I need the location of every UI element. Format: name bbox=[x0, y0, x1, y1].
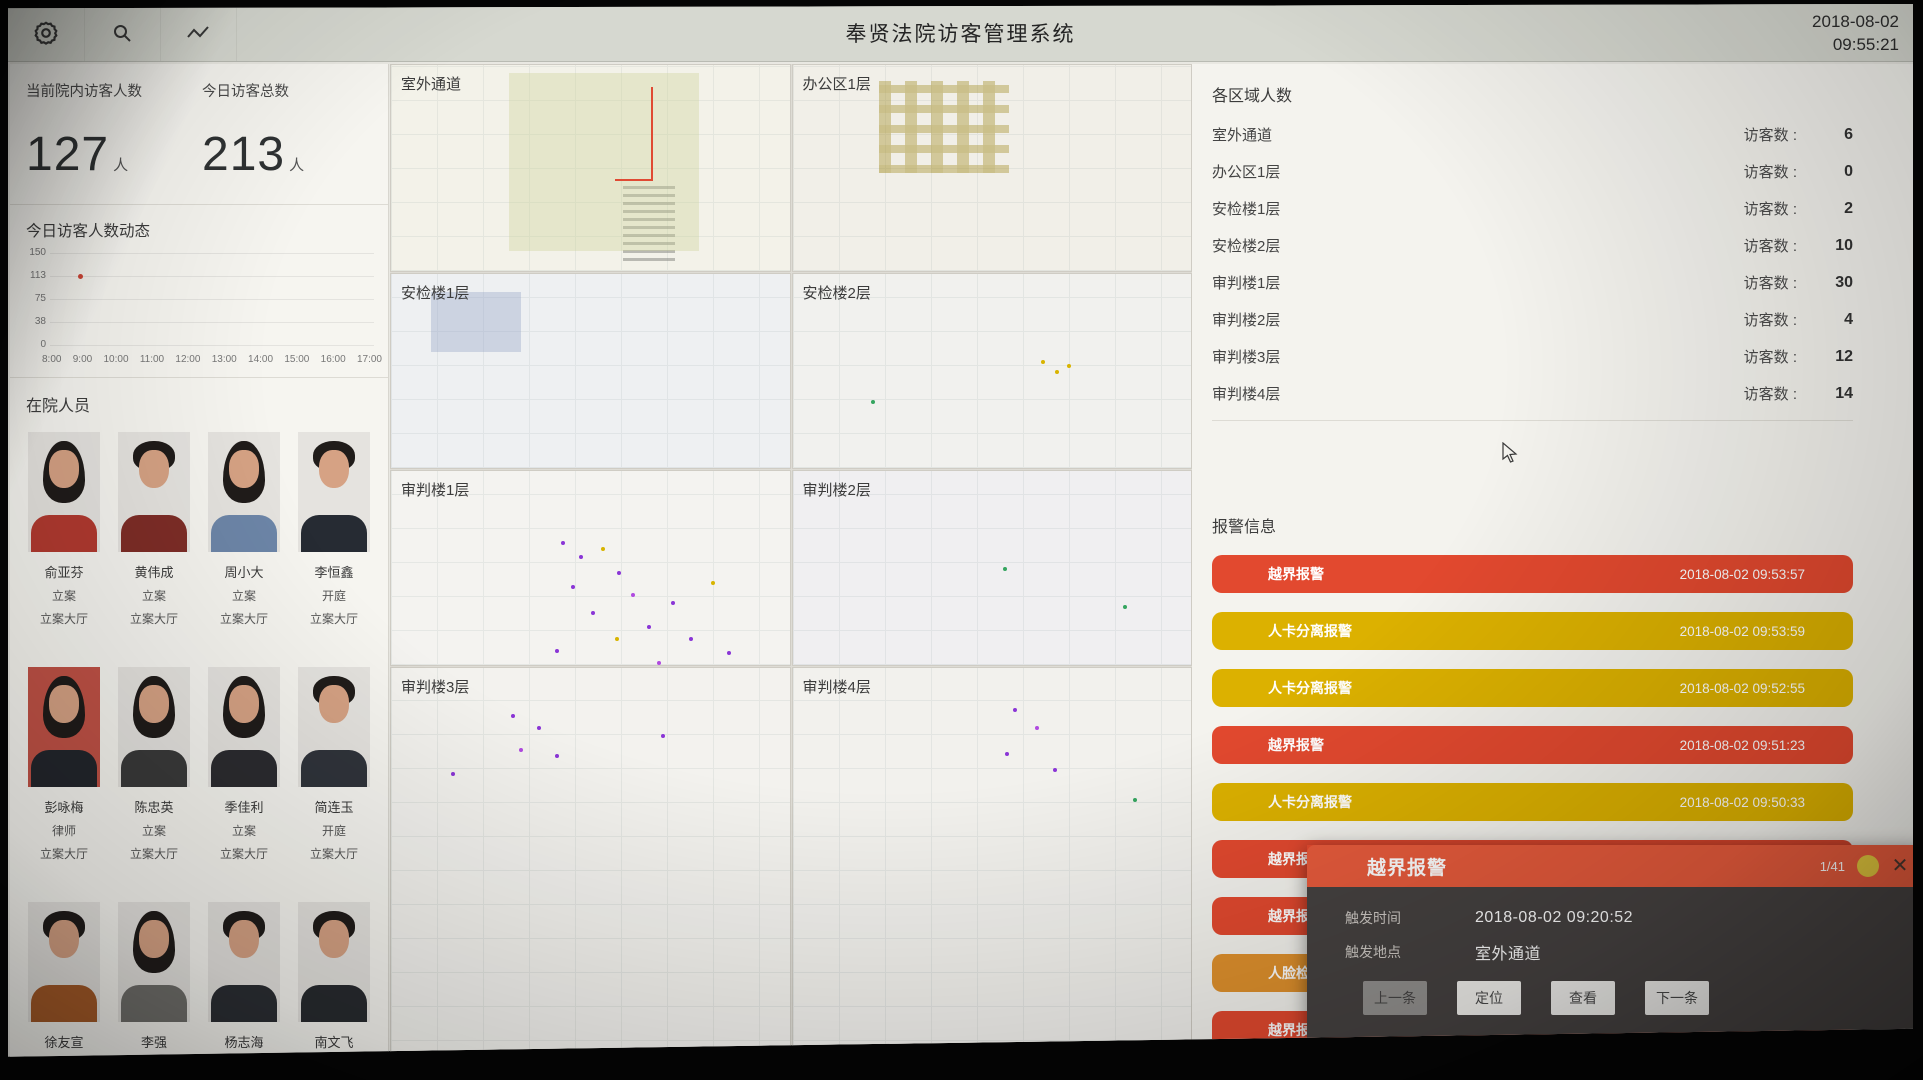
person-card: 周小大 立案 立案大厅 bbox=[202, 432, 286, 627]
person-photo bbox=[208, 902, 280, 1022]
person-location: 立案大厅 bbox=[22, 845, 106, 862]
alarm-item[interactable]: 人卡分离报警2018-08-02 09:52:55 bbox=[1212, 669, 1853, 707]
person-name: 杨志海 bbox=[202, 1032, 286, 1051]
area-count: 10 bbox=[1797, 237, 1853, 255]
close-icon[interactable]: ✕ bbox=[1889, 855, 1911, 877]
dashboard-screen: 奉贤法院访客管理系统 2018-08-02 09:55:21 当前院内访客人数 … bbox=[8, 4, 1913, 1076]
person-type: 立案 bbox=[202, 587, 286, 604]
person-type: 立案 bbox=[22, 587, 106, 604]
alarm-item[interactable]: 人卡分离报警2018-08-02 09:50:33 bbox=[1212, 783, 1853, 821]
top-bar: 奉贤法院访客管理系统 2018-08-02 09:55:21 bbox=[8, 4, 1913, 62]
person-type: 立案 bbox=[202, 822, 286, 839]
today-visitors-label: 今日访客总数 bbox=[202, 80, 378, 101]
person-name: 南文飞 bbox=[292, 1032, 376, 1051]
alarm-item[interactable]: 越界报警2018-08-02 09:53:57 bbox=[1212, 555, 1853, 593]
chart-title: 今日访客人数动态 bbox=[10, 205, 388, 249]
y-tick: 150 bbox=[20, 247, 46, 258]
person-name: 陈忠英 bbox=[112, 797, 196, 816]
visitor-dots bbox=[561, 541, 565, 545]
person-photo bbox=[28, 667, 100, 787]
person-location: 立案大厅 bbox=[292, 610, 376, 627]
alarm-status-dot bbox=[1857, 855, 1879, 877]
person-name: 李强 bbox=[112, 1032, 196, 1051]
area-count: 4 bbox=[1797, 311, 1853, 329]
map-label: 室外通道 bbox=[401, 73, 461, 94]
area-count: 14 bbox=[1797, 385, 1853, 403]
map-outdoor-passage[interactable]: 室外通道 bbox=[390, 64, 791, 272]
area-count: 30 bbox=[1797, 274, 1853, 292]
person-name: 简连玉 bbox=[292, 797, 376, 816]
person-type: 开庭 bbox=[202, 1057, 286, 1074]
area-row: 审判楼3层访客数 :12 bbox=[1212, 338, 1853, 375]
person-photo bbox=[298, 902, 370, 1022]
map-label: 安检楼1层 bbox=[401, 282, 469, 303]
y-tick: 0 bbox=[20, 339, 46, 350]
area-count: 6 bbox=[1797, 126, 1853, 144]
person-card: 俞亚芬 立案 立案大厅 bbox=[22, 432, 106, 627]
person-type: 立案 bbox=[22, 1057, 106, 1074]
visitor-dots bbox=[1003, 567, 1007, 571]
person-photo bbox=[298, 432, 370, 552]
person-location: 立案大厅 bbox=[202, 845, 286, 862]
locate-button[interactable]: 定位 bbox=[1457, 981, 1521, 1015]
map-label: 安检楼2层 bbox=[803, 282, 871, 303]
date-text: 2018-08-02 bbox=[1812, 11, 1899, 34]
person-photo bbox=[118, 902, 190, 1022]
map-trial-floor1[interactable]: 审判楼1层 bbox=[390, 470, 791, 666]
view-button[interactable]: 查看 bbox=[1551, 981, 1615, 1015]
trigger-time-label: 触发时间 bbox=[1345, 908, 1475, 928]
visitor-dots bbox=[511, 714, 515, 718]
divider bbox=[1212, 420, 1853, 421]
map-security-floor1[interactable]: 安检楼1层 bbox=[390, 273, 791, 469]
map-label: 审判楼1层 bbox=[401, 479, 469, 500]
map-office-floor1[interactable]: 办公区1层 bbox=[792, 64, 1193, 272]
person-card: 李强 立案 bbox=[112, 902, 196, 1080]
trigger-time-value: 2018-08-02 09:20:52 bbox=[1475, 909, 1633, 927]
map-trial-floor3[interactable]: 审判楼3层 bbox=[390, 667, 791, 1076]
visitor-trend-chart: 150 113 75 38 0 bbox=[20, 253, 378, 349]
area-counts-list: 室外通道访客数 :6 办公区1层访客数 :0 安检楼1层访客数 :2 安检楼2层… bbox=[1212, 116, 1853, 412]
person-photo bbox=[118, 432, 190, 552]
person-card: 彭咏梅 律师 立案大厅 bbox=[22, 667, 106, 862]
area-row: 安检楼1层访客数 :2 bbox=[1212, 190, 1853, 227]
current-visitors-value: 127人 bbox=[26, 127, 202, 182]
person-card: 黄伟成 立案 立案大厅 bbox=[112, 432, 196, 627]
person-card: 李恒鑫 开庭 立案大厅 bbox=[292, 432, 376, 627]
map-label: 审判楼3层 bbox=[401, 676, 469, 697]
visitor-dots bbox=[1041, 360, 1045, 364]
person-type: 立案 bbox=[112, 822, 196, 839]
trigger-place-value: 室外通道 bbox=[1475, 940, 1541, 964]
map-trial-floor4[interactable]: 审判楼4层 bbox=[792, 667, 1193, 1076]
person-location: 立案大厅 bbox=[202, 610, 286, 627]
person-type: 立案 bbox=[112, 1057, 196, 1074]
person-card: 杨志海 开庭 bbox=[202, 902, 286, 1080]
map-security-floor2[interactable]: 安检楼2层 bbox=[792, 273, 1193, 469]
visitor-dots bbox=[1013, 708, 1017, 712]
person-name: 李恒鑫 bbox=[292, 562, 376, 581]
map-label: 办公区1层 bbox=[803, 73, 871, 94]
person-photo bbox=[118, 667, 190, 787]
area-row: 审判楼2层访客数 :4 bbox=[1212, 301, 1853, 338]
area-row: 安检楼2层访客数 :10 bbox=[1212, 227, 1853, 264]
person-name: 周小大 bbox=[202, 562, 286, 581]
previous-button[interactable]: 上一条 bbox=[1363, 981, 1427, 1015]
map-label: 审判楼2层 bbox=[803, 479, 871, 500]
field-row: 触发时间 2018-08-02 09:20:52 bbox=[1345, 901, 1903, 935]
person-card: 徐友宣 立案 bbox=[22, 902, 106, 1080]
next-button[interactable]: 下一条 bbox=[1645, 981, 1709, 1015]
person-location: 立案大厅 bbox=[292, 845, 376, 862]
left-panel: 当前院内访客人数 127人 今日访客总数 213人 今日访客人数动态 150 1… bbox=[10, 64, 389, 1076]
person-photo bbox=[298, 667, 370, 787]
area-row: 办公区1层访客数 :0 bbox=[1212, 153, 1853, 190]
y-tick: 38 bbox=[20, 316, 46, 327]
person-card: 陈忠英 立案 立案大厅 bbox=[112, 667, 196, 862]
person-card: 季佳利 立案 立案大厅 bbox=[202, 667, 286, 862]
map-trial-floor2[interactable]: 审判楼2层 bbox=[792, 470, 1193, 666]
popup-title: 越界报警 bbox=[1307, 853, 1447, 880]
app-title: 奉贤法院访客管理系统 bbox=[8, 4, 1913, 61]
person-type: 开庭 bbox=[292, 822, 376, 839]
person-type: 立案 bbox=[112, 587, 196, 604]
alarm-section-title: 报警信息 bbox=[1212, 513, 1853, 537]
person-type: 律师 bbox=[22, 822, 106, 839]
area-row: 审判楼1层访客数 :30 bbox=[1212, 264, 1853, 301]
alarm-item[interactable]: 人卡分离报警2018-08-02 09:53:59 bbox=[1212, 612, 1853, 650]
person-location: 立案大厅 bbox=[112, 845, 196, 862]
person-name: 彭咏梅 bbox=[22, 797, 106, 816]
floorplan-grid: 室外通道 办公区1层 安检楼1层 安检楼2层 审判楼1层 审判楼2层 审判楼3层… bbox=[390, 64, 1192, 1076]
y-tick: 113 bbox=[20, 270, 46, 281]
data-point bbox=[78, 274, 83, 279]
mouse-cursor bbox=[1502, 442, 1518, 469]
area-row: 室外通道访客数 :6 bbox=[1212, 116, 1853, 153]
person-name: 徐友宣 bbox=[22, 1032, 106, 1051]
person-photo bbox=[208, 432, 280, 552]
area-row: 审判楼4层访客数 :14 bbox=[1212, 375, 1853, 412]
personnel-title: 在院人员 bbox=[10, 378, 388, 424]
area-count: 0 bbox=[1797, 163, 1853, 181]
popup-buttons: 上一条 定位 查看 下一条 bbox=[1363, 981, 1903, 1015]
person-type: 开庭 bbox=[292, 587, 376, 604]
field-row: 触发地点 室外通道 bbox=[1345, 935, 1903, 969]
popup-body: 触发时间 2018-08-02 09:20:52 触发地点 室外通道 上一条 定… bbox=[1307, 887, 1923, 1041]
today-visitors-value: 213人 bbox=[202, 127, 378, 182]
person-name: 黄伟成 bbox=[112, 562, 196, 581]
alarm-item[interactable]: 越界报警2018-08-02 09:51:23 bbox=[1212, 726, 1853, 764]
current-visitors-stat: 当前院内访客人数 127人 bbox=[26, 80, 202, 182]
area-counts-title: 各区域人数 bbox=[1212, 82, 1853, 106]
personnel-grid: 俞亚芬 立案 立案大厅 黄伟成 立案 立案大厅 周小大 立案 立案大厅 李恒鑫 … bbox=[10, 424, 388, 1080]
trigger-place-label: 触发地点 bbox=[1345, 942, 1475, 962]
person-type: 立案 bbox=[292, 1057, 376, 1074]
map-label: 审判楼4层 bbox=[803, 676, 871, 697]
datetime: 2018-08-02 09:55:21 bbox=[1812, 11, 1899, 57]
visitor-stats: 当前院内访客人数 127人 今日访客总数 213人 bbox=[10, 64, 388, 194]
person-name: 季佳利 bbox=[202, 797, 286, 816]
person-name: 俞亚芬 bbox=[22, 562, 106, 581]
map-detail bbox=[623, 183, 675, 261]
person-location: 立案大厅 bbox=[22, 610, 106, 627]
person-photo bbox=[28, 432, 100, 552]
person-location: 立案大厅 bbox=[112, 610, 196, 627]
y-tick: 75 bbox=[20, 293, 46, 304]
time-text: 09:55:21 bbox=[1812, 34, 1899, 57]
person-photo bbox=[28, 902, 100, 1022]
x-axis: 8:009:0010:0011:0012:0013:0014:0015:0016… bbox=[10, 349, 388, 365]
person-card: 简连玉 开庭 立案大厅 bbox=[292, 667, 376, 862]
person-card: 南文飞 立案 bbox=[292, 902, 376, 1080]
person-photo bbox=[208, 667, 280, 787]
alarm-popup: 越界报警 1/41 ✕ 触发时间 2018-08-02 09:20:52 触发地… bbox=[1307, 845, 1923, 1041]
area-count: 2 bbox=[1797, 200, 1853, 218]
today-visitors-stat: 今日访客总数 213人 bbox=[202, 80, 378, 182]
route-path bbox=[615, 87, 653, 181]
current-visitors-label: 当前院内访客人数 bbox=[26, 80, 202, 101]
popup-header: 越界报警 1/41 ✕ bbox=[1307, 845, 1923, 887]
popup-counter: 1/41 bbox=[1820, 859, 1845, 874]
area-count: 12 bbox=[1797, 348, 1853, 366]
